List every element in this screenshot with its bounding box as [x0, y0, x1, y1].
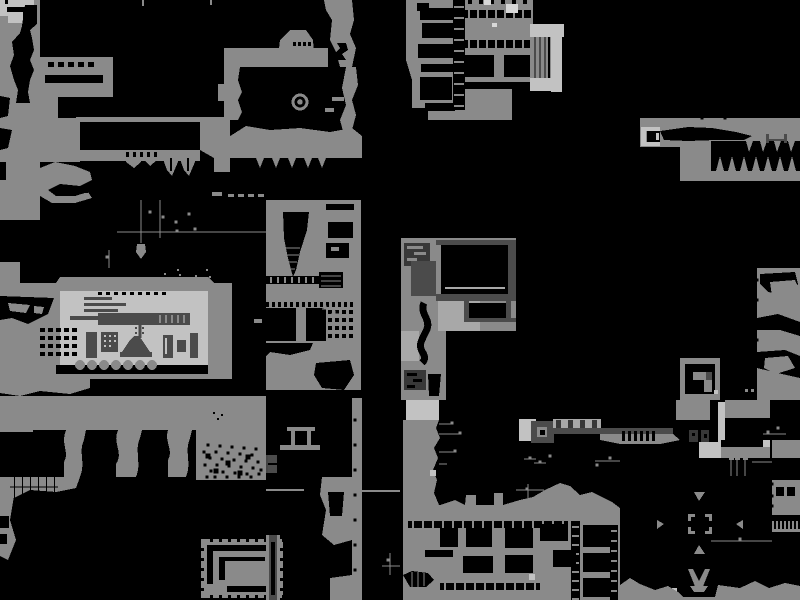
maze-center [225, 561, 265, 583]
greek-b-mark3 [407, 385, 415, 388]
eye-top-band-right [313, 48, 328, 67]
gr-top [725, 400, 770, 418]
water-drop [136, 244, 146, 259]
tm-channel [453, 0, 465, 110]
step-frame-right [506, 301, 511, 322]
room-cavity [80, 122, 200, 151]
chimney-pocket [328, 492, 344, 516]
room-left-wall [40, 118, 80, 162]
maze-tail [207, 584, 227, 592]
ship-left-step [0, 262, 20, 286]
bottom-pole-dot [387, 559, 390, 562]
top-tick2 [210, 0, 212, 5]
greek-b-mark1 [407, 373, 417, 376]
lc-pocket1 [0, 516, 9, 528]
slab-stripe2 [84, 303, 126, 306]
slab-block5 [190, 333, 198, 358]
tl-block-mark1 [7, 7, 27, 12]
small-bar [212, 192, 222, 196]
tl-gray-notch [0, 16, 8, 23]
tm-room3 [418, 44, 453, 58]
frame-right [508, 245, 516, 295]
eye-floor [224, 126, 362, 158]
room-top-bar [76, 117, 202, 122]
table-bar [287, 427, 315, 431]
lc-pocket2 [0, 534, 7, 544]
gr-floor [721, 447, 770, 458]
rc-beam-bar [766, 139, 787, 141]
eye-ledge2 [325, 108, 334, 112]
window-light-line [445, 287, 505, 289]
bm-room8 [463, 556, 493, 573]
gr-hole [725, 418, 763, 447]
shore-pole-dot [739, 538, 742, 541]
compass-arrow-down [694, 492, 705, 501]
floor-tooth4 [304, 158, 312, 168]
small-pillar [218, 84, 224, 101]
lc-tick-row [20, 500, 73, 505]
slab-bar-ext [70, 316, 98, 320]
bracket-corner-tr [705, 514, 712, 521]
elevator-cable3 [544, 37, 546, 78]
elevator-cable1 [534, 37, 536, 78]
slab-fountain-base [120, 352, 152, 357]
bm-room3 [505, 528, 533, 548]
floor-tooth5 [318, 158, 326, 168]
bm-room10 [553, 550, 576, 567]
glyph-notch1 [692, 433, 695, 436]
compass-arrow-up [694, 545, 705, 554]
thin-line-left [266, 489, 304, 491]
elevator-bottom-bar [530, 78, 562, 91]
bm-room7 [583, 578, 610, 597]
pole-nodes [149, 211, 197, 233]
gr-pole-cap2 [735, 458, 740, 460]
eye-ledge3 [225, 93, 232, 97]
table-floor [280, 445, 320, 450]
light-square2 [529, 574, 535, 580]
top-tick1 [142, 0, 144, 6]
rc-beam-right [784, 134, 787, 143]
tower-bottom-carve2 [266, 396, 296, 400]
col-light-cap [406, 400, 439, 420]
dark-door-strip2 [277, 535, 280, 600]
frame-top [436, 240, 516, 245]
winding-snake [420, 303, 427, 363]
compass-arrow-right [657, 520, 664, 529]
tm-pillar [494, 55, 504, 77]
tm-light1 [484, 0, 491, 5]
glyph-notch2 [704, 434, 707, 438]
pole-cube1 [268, 455, 277, 463]
bm-room9 [505, 555, 533, 573]
bracket-corner-br [705, 527, 712, 534]
elevator-cable4 [548, 37, 550, 78]
low-pocket [428, 374, 441, 396]
floor-tooth1 [256, 158, 264, 168]
eye-top-band-left [224, 48, 282, 67]
shelter-light-dot [714, 390, 718, 394]
shelter-dark [706, 372, 712, 380]
eye-hill [277, 30, 315, 67]
bm-room4 [540, 524, 568, 541]
dark-door-core [271, 542, 275, 595]
mass-pole-dot [526, 488, 529, 491]
tower-room1 [328, 222, 353, 238]
slab-block3 [163, 335, 173, 358]
scallop-bump6 [135, 360, 145, 370]
greek-b-mark2 [413, 379, 422, 382]
rstrip-pole2-dots [767, 427, 780, 434]
rc-bracket-left [641, 127, 646, 146]
boat-shape [690, 586, 708, 592]
scallop-bump4 [111, 360, 121, 370]
tm-room5 [425, 103, 455, 111]
dune [40, 162, 92, 203]
bm-channel2 [610, 525, 618, 600]
scallop-bump5 [123, 360, 133, 370]
scallop-bump3 [99, 360, 109, 370]
greek-mark1 [407, 246, 423, 249]
big-black-window [441, 245, 508, 294]
band-black-bar [45, 75, 103, 83]
pole-v2-node [106, 256, 109, 259]
col-body [403, 420, 440, 505]
slab-tick-row [98, 292, 166, 295]
frame-bottom [436, 294, 516, 301]
slab-block3-slit [165, 338, 167, 354]
tm-room1 [420, 8, 453, 20]
tower-slot-top [326, 204, 354, 210]
slab-bar [98, 313, 190, 325]
thin-line-right [362, 490, 400, 492]
tl-block-mark3 [5, 0, 8, 4]
side-bar [254, 319, 262, 323]
table-leg2 [307, 431, 311, 445]
scallop-bump1 [75, 360, 85, 370]
bm-room2 [466, 528, 492, 547]
world-map-canvas[interactable] [0, 0, 800, 600]
gr-pole-cap3 [743, 458, 748, 460]
eye-ledge1 [332, 97, 344, 101]
rstrip-room2 [787, 487, 795, 496]
pole-cube2 [268, 465, 277, 473]
floor-tooth2 [272, 158, 280, 168]
floor-tooth3 [288, 158, 296, 168]
tower-room4 [306, 308, 326, 341]
bm-room1 [440, 528, 458, 547]
bracket-corner-tl [688, 514, 695, 521]
tm-light2 [506, 4, 518, 13]
game-map-screen [0, 0, 800, 600]
tower-room2-inner [331, 247, 339, 251]
light-strip [401, 331, 419, 361]
eye-pupil [297, 99, 303, 105]
bridge-bracket-core [540, 430, 545, 435]
greek-mark3 [407, 258, 417, 261]
eye-ledge4 [225, 110, 233, 114]
rc-beam-left [766, 134, 769, 143]
slab-stripe1 [84, 297, 112, 300]
tower-bottom-carve1 [296, 393, 348, 400]
ship-under-dune [0, 379, 90, 396]
rstrip-mid [772, 480, 800, 515]
compass-arrow-left [736, 520, 743, 529]
scallop-bump2 [87, 360, 97, 370]
step-box [469, 303, 506, 318]
bm-room5 [583, 525, 610, 547]
left-edge-notch3 [0, 162, 6, 180]
small-dashes [228, 194, 264, 197]
tm-room2 [422, 23, 453, 38]
bridge-end-block [676, 400, 710, 420]
band-lower-col [38, 95, 58, 121]
tower-teeth-row [266, 302, 353, 307]
rstrip-upper [772, 440, 800, 458]
rc-bracket-tick [656, 133, 659, 140]
rstrip-room1 [776, 487, 784, 496]
light-square1 [430, 470, 436, 476]
chimney-foot [330, 575, 352, 600]
col-pole-dots [451, 422, 462, 453]
tower-room3 [266, 308, 296, 341]
slab-block1 [86, 332, 97, 358]
elevator-cable2 [539, 37, 541, 78]
dark-slab [411, 261, 436, 296]
lc-ceiling [0, 396, 266, 432]
gr-light-corner [763, 440, 770, 447]
tm-light3 [492, 23, 497, 27]
table-leg1 [291, 431, 295, 445]
bottom-shore [620, 578, 800, 600]
bracket-corner-bl [688, 527, 695, 534]
scallop-bump7 [147, 360, 157, 370]
tm-room4 [420, 77, 452, 100]
slab-block4 [177, 340, 186, 352]
bm-slot2 [425, 550, 453, 557]
dark-door-strip1 [266, 535, 269, 600]
tm-slot3 [465, 82, 533, 89]
greek-mark2 [414, 252, 426, 255]
bm-room6 [583, 553, 610, 572]
gr-pole-cap1 [729, 458, 734, 460]
slab-stripe3 [84, 309, 118, 312]
